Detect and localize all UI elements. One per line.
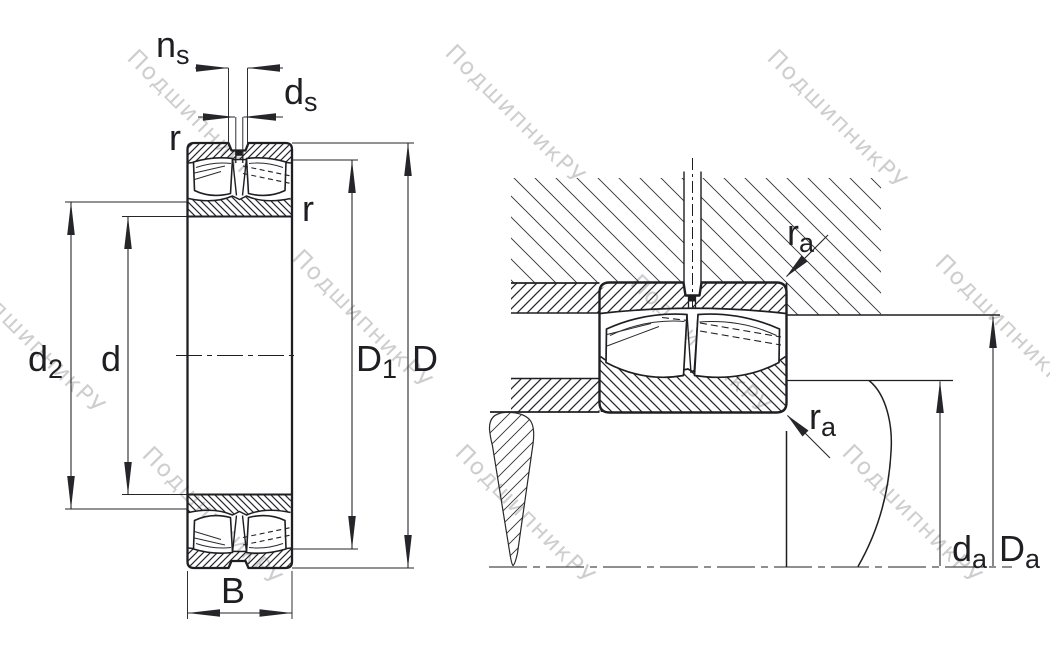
- label-Da: Da: [999, 528, 1041, 574]
- label-d: d: [101, 338, 121, 379]
- label-r-top: r: [169, 117, 181, 158]
- label-D: D: [412, 338, 438, 379]
- label-ra-shaft: ra: [809, 396, 837, 442]
- label-r-side: r: [302, 188, 314, 229]
- label-ns: ns: [156, 24, 190, 70]
- watermark-text: ПодшипникРУ: [0, 270, 110, 420]
- watermark-text: ПодшипникРУ: [762, 45, 912, 195]
- label-B: B: [221, 570, 245, 611]
- watermark-text: ПодшипникРУ: [930, 250, 1050, 400]
- technical-drawing: ПодшипникРУ ПодшипникРУ ПодшипникРУ Подш…: [0, 0, 1050, 650]
- watermark-text: ПодшипникРУ: [440, 40, 590, 190]
- label-da: da: [952, 528, 988, 574]
- drawing-page: ПодшипникРУ ПодшипникРУ ПодшипникРУ Подш…: [0, 0, 1050, 650]
- label-ds: ds: [284, 71, 318, 117]
- label-d2: d2: [28, 338, 63, 384]
- abutment-spacer-rings: [511, 284, 600, 413]
- mounting-arrangement-view: [489, 158, 1012, 567]
